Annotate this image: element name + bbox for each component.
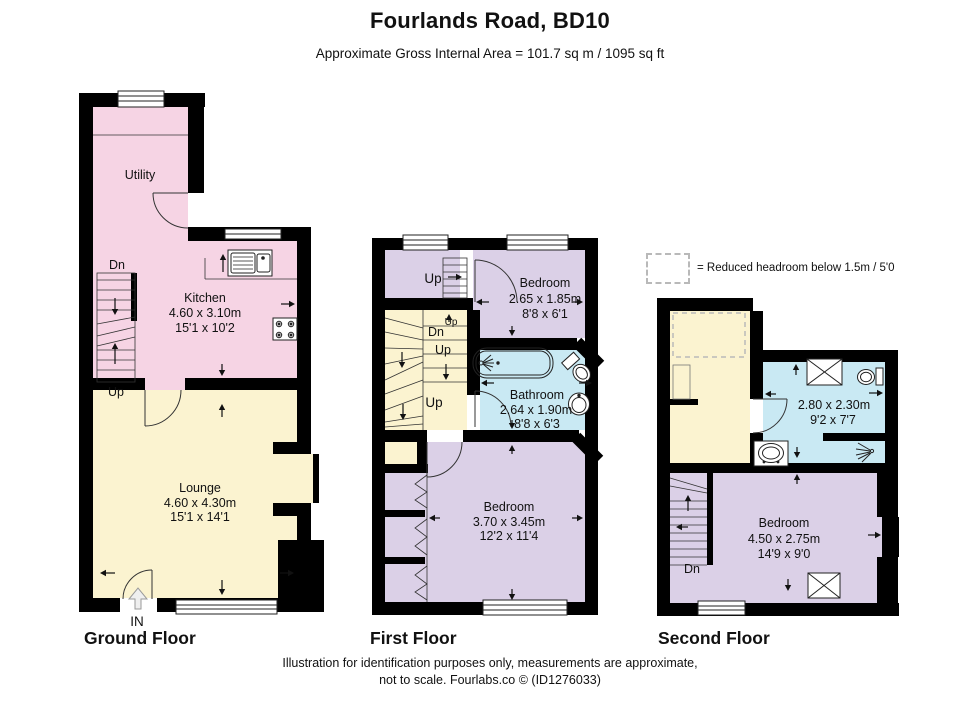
- lounge-label: Lounge: [179, 481, 221, 495]
- stairs-up-mid-label: Up: [435, 343, 451, 357]
- kitchen-dims-imperial: 15'1 x 10'2: [175, 321, 235, 335]
- skylight-icon: [808, 573, 840, 598]
- stairs-up-label: Up: [108, 385, 124, 399]
- entrance-label: IN: [130, 614, 144, 629]
- first-floor-label: First Floor: [370, 628, 457, 649]
- second-windows: [698, 601, 745, 615]
- basin-icon: [754, 441, 788, 466]
- kitchen-hob-icon: [273, 318, 297, 340]
- stairs-down-label: Dn: [109, 258, 125, 272]
- chimney-recess: [297, 454, 313, 503]
- landing-up-label: Up: [424, 271, 441, 286]
- disclaimer-line2: not to scale. Fourlabs.co © (ID1276033): [0, 673, 980, 687]
- bedroom-large-imperial: 12'2 x 11'4: [480, 529, 539, 543]
- stairs-down-label: Dn: [428, 325, 444, 339]
- page-title: Fourlands Road, BD10: [0, 8, 980, 34]
- bedroom-small-imperial: 8'8 x 6'1: [522, 307, 568, 321]
- chimney-recess-outer-wall: [313, 454, 319, 503]
- kitchen-label: Kitchen: [184, 291, 226, 305]
- second-floor-plan: 2.80 x 2.30m 9'2 x 7'7 Bedroom 4.50 x 2.…: [650, 295, 900, 620]
- shower-room-metric: 2.80 x 2.30m: [798, 398, 870, 412]
- page-subtitle: Approximate Gross Internal Area = 101.7 …: [0, 46, 980, 61]
- bedroom-small-metric: 2.65 x 1.85m: [509, 292, 581, 306]
- toilet-icon: [858, 368, 884, 385]
- bedroom-large-label: Bedroom: [484, 500, 535, 514]
- ground-floor-plan: Utility Kitchen 4.60 x 3.10m 15'1 x 10'2…: [75, 88, 325, 636]
- bedroom-imperial: 14'9 x 9'0: [758, 547, 811, 561]
- bathroom-label: Bathroom: [510, 388, 564, 402]
- bedroom-label: Bedroom: [759, 516, 810, 530]
- reduced-headroom-legend-swatch: [646, 253, 690, 284]
- bedroom-metric: 4.50 x 2.75m: [748, 532, 820, 546]
- kitchen-dims-metric: 4.60 x 3.10m: [169, 306, 241, 320]
- stairs-up-big-label: Up: [425, 395, 442, 410]
- first-floor-plan: Up Up Dn Up Up Bedroom 2.65 x 1.85m 8'8 …: [370, 228, 610, 623]
- reduced-headroom-legend-label: = Reduced headroom below 1.5m / 5'0: [697, 262, 895, 274]
- bathroom-metric: 2.64 x 1.90m: [500, 403, 572, 417]
- bedroom-small-label: Bedroom: [520, 276, 571, 290]
- stairs-down-label: Dn: [684, 562, 700, 576]
- bedroom-large-metric: 3.70 x 3.45m: [473, 515, 545, 529]
- ground-floor-label: Ground Floor: [84, 628, 196, 649]
- shower-room-imperial: 9'2 x 7'7: [810, 413, 856, 427]
- second-floor-label: Second Floor: [658, 628, 770, 649]
- floorplan-page: Fourlands Road, BD10 Approximate Gross I…: [0, 0, 980, 707]
- disclaimer-line1: Illustration for identification purposes…: [0, 656, 980, 670]
- bathroom-imperial: 8'8 x 6'3: [514, 417, 560, 431]
- shower-icon: [807, 359, 842, 385]
- lounge-dims-metric: 4.60 x 4.30m: [164, 496, 236, 510]
- utility-label: Utility: [125, 168, 156, 182]
- kitchen-sink-icon: [228, 250, 272, 276]
- lounge-dims-imperial: 15'1 x 14'1: [170, 510, 230, 524]
